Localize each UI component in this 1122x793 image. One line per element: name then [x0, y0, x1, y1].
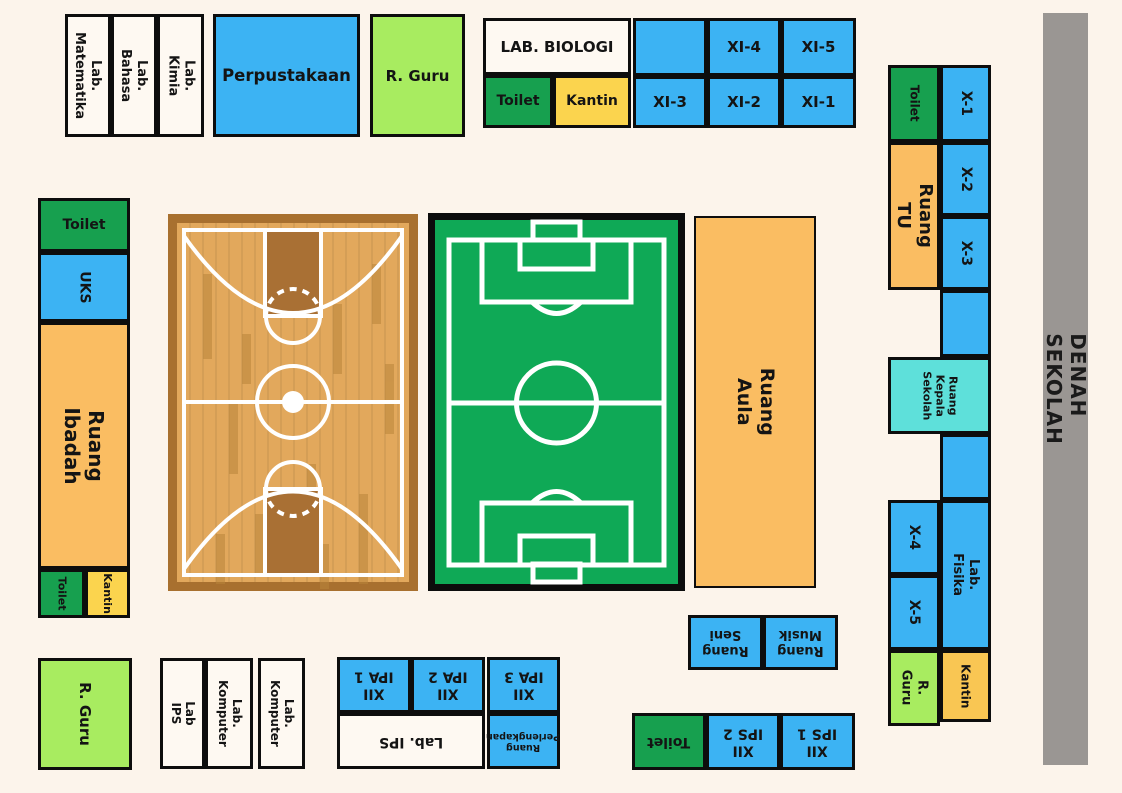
room-label: Toilet: [496, 93, 539, 110]
room-label: Ruang Perlengkapan: [486, 730, 560, 753]
room-lab-komputer-2: Lab. Komputer: [258, 658, 305, 769]
room-label: R. Guru: [76, 682, 94, 746]
room-lab-matematika: Lab. Matematika: [65, 14, 111, 137]
room-label: XI-3: [653, 93, 687, 111]
room-label: Kantin: [566, 93, 618, 110]
room-label: Lab. Komputer: [267, 680, 296, 747]
room-label: X-1: [957, 91, 974, 116]
room-kantin-left: Kantin: [85, 569, 130, 618]
room-r-guru-right: R. Guru: [888, 650, 940, 726]
room-label: Lab. Fisika: [950, 553, 981, 598]
room-label: UKS: [76, 271, 93, 303]
room-toilet-left: Toilet: [38, 198, 130, 252]
room-label: XII IPS 1: [797, 725, 837, 759]
room-label: R. Guru: [386, 67, 450, 85]
room-ruang-tu: Ruang TU: [888, 142, 940, 290]
room-blank-right-2: [940, 434, 991, 500]
room-label: XI-2: [727, 93, 761, 111]
room-label: Lab. Bahasa: [118, 49, 149, 102]
room-label: LAB. BIOLOGI: [501, 38, 614, 56]
room-xi-5: XI-5: [781, 18, 856, 76]
room-perpustakaan: Perpustakaan: [213, 14, 360, 137]
room-lab-fisika: Lab. Fisika: [940, 500, 991, 650]
room-label: Kantin: [958, 664, 972, 708]
room-label: XI-4: [727, 38, 761, 56]
room-label: XII IPA 2: [428, 668, 468, 702]
soccer-field-svg: [428, 213, 685, 591]
room-label: X-5: [906, 600, 923, 625]
room-label: XII IPA 3: [504, 668, 544, 702]
room-label: Toilet: [647, 733, 690, 750]
room-xii-ips-2: XII IPS 2: [706, 713, 780, 770]
room-label: Lab IPS: [168, 694, 197, 733]
room-label: XII IPA 1: [354, 668, 394, 702]
room-xii-ipa-3: XII IPA 3: [487, 657, 560, 713]
room-label: Ruang Seni: [702, 627, 749, 658]
room-lab-ips-left: Lab IPS: [160, 658, 205, 769]
room-label: Ruang Aula: [732, 343, 778, 461]
room-xi-4: XI-4: [707, 18, 781, 76]
room-label: Toilet: [55, 577, 68, 611]
room-label: R. Guru: [898, 665, 929, 711]
room-lab-biologi: LAB. BIOLOGI: [483, 18, 631, 75]
room-label: Toilet: [62, 217, 105, 234]
room-label: X-3: [957, 240, 974, 265]
room-ruang-aula: Ruang Aula: [694, 216, 816, 588]
room-x-5: X-5: [888, 575, 940, 650]
room-label: XI-5: [802, 38, 836, 56]
room-xi-3: XI-3: [633, 76, 707, 128]
room-ruang-musik: Ruang Musik: [763, 615, 838, 670]
room-r-guru-bottom: R. Guru: [38, 658, 132, 770]
room-label: Ruang Musik: [777, 627, 824, 658]
room-label: Perpustakaan: [222, 66, 351, 86]
room-label: Kantin: [101, 573, 114, 614]
room-blank-top: [633, 18, 707, 76]
room-x-1: X-1: [940, 65, 991, 142]
room-xii-ipa-2: XII IPA 2: [411, 657, 485, 713]
room-label: XII IPS 2: [723, 725, 763, 759]
room-ruang-kepala-sekolah: Ruang Kepala Sekolah: [888, 357, 991, 434]
room-lab-bahasa: Lab. Bahasa: [111, 14, 157, 137]
basketball-court-svg: [168, 214, 418, 591]
soccer-field: [428, 213, 685, 591]
room-label: Lab. Matematika: [72, 32, 103, 119]
room-toilet-left-small: Toilet: [38, 569, 85, 618]
plan-title: DENAH SEKOLAH: [1042, 333, 1090, 445]
room-label: Ruang Kepala Sekolah: [920, 371, 960, 420]
room-lab-kimia: Lab. Kimia: [157, 14, 204, 137]
room-x-4: X-4: [888, 500, 940, 575]
room-xi-2: XI-2: [707, 76, 781, 128]
room-label: Ruang TU: [892, 184, 935, 249]
room-r-guru-top: R. Guru: [370, 14, 465, 137]
room-blank-right-1: [940, 290, 991, 357]
room-xii-ipa-1: XII IPA 1: [337, 657, 411, 713]
basketball-court: [168, 214, 418, 591]
room-x-3: X-3: [940, 216, 991, 290]
room-label: Ruang Ibadah: [60, 403, 108, 489]
room-x-2: X-2: [940, 142, 991, 216]
room-label: X-2: [957, 166, 974, 191]
room-label: Lab. IPS: [379, 733, 443, 750]
room-toilet-right: Toilet: [888, 65, 940, 142]
room-kantin-right: Kantin: [940, 650, 991, 722]
room-uks: UKS: [38, 252, 130, 322]
room-label: XI-1: [802, 93, 836, 111]
room-xii-ips-1: XII IPS 1: [780, 713, 855, 770]
room-lab-ips-mid: Lab. IPS: [337, 713, 485, 769]
room-toilet-bottom: Toilet: [632, 713, 706, 770]
room-label: Lab. Kimia: [165, 55, 196, 96]
room-lab-komputer-1: Lab. Komputer: [205, 658, 253, 769]
room-ruang-seni: Ruang Seni: [688, 615, 763, 670]
room-ruang-perlengkapan: Ruang Perlengkapan: [487, 713, 560, 769]
room-label: Toilet: [907, 85, 921, 122]
plan-title-bar: DENAH SEKOLAH: [1043, 13, 1088, 765]
room-toilet-top: Toilet: [483, 75, 553, 128]
room-label: X-4: [906, 525, 923, 550]
room-xi-1: XI-1: [781, 76, 856, 128]
room-ruang-ibadah: Ruang Ibadah: [38, 322, 130, 569]
school-floor-plan: DENAH SEKOLAH Lab. Matematika Lab. Bahas…: [0, 0, 1122, 793]
room-kantin-top: Kantin: [553, 75, 631, 128]
room-label: Lab. Komputer: [215, 680, 244, 747]
